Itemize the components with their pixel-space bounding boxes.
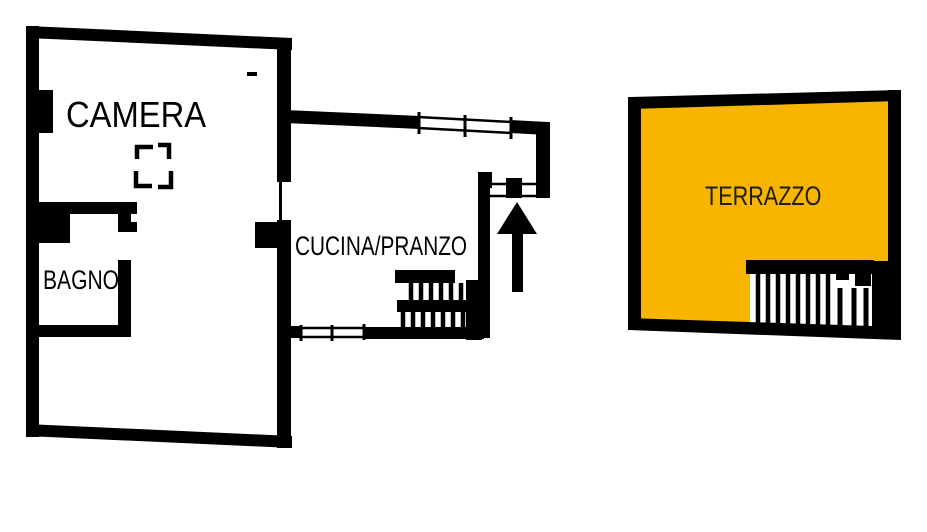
- main-unit-walls: [26, 26, 550, 448]
- window-bottom: [300, 324, 365, 341]
- scan-artifact: [247, 72, 257, 76]
- stairs-terrace: [746, 260, 889, 331]
- floor-plan: CAMERA BAGNO CUCINA/PRANZO TERRAZZO: [0, 0, 927, 532]
- room-label-camera: CAMERA: [66, 97, 206, 133]
- room-label-cucina-pranzo: CUCINA/PRANZO: [295, 233, 467, 260]
- terrace-unit: [628, 90, 901, 340]
- entrance-arrow-icon: [497, 202, 537, 292]
- room-label-terrazzo: TERRAZZO: [705, 183, 821, 210]
- flue-symbol-icon: [136, 145, 171, 187]
- floor-plan-drawing: [0, 0, 927, 532]
- window-top: [418, 112, 512, 139]
- room-label-bagno: BAGNO: [43, 267, 119, 294]
- main-unit: [26, 26, 550, 448]
